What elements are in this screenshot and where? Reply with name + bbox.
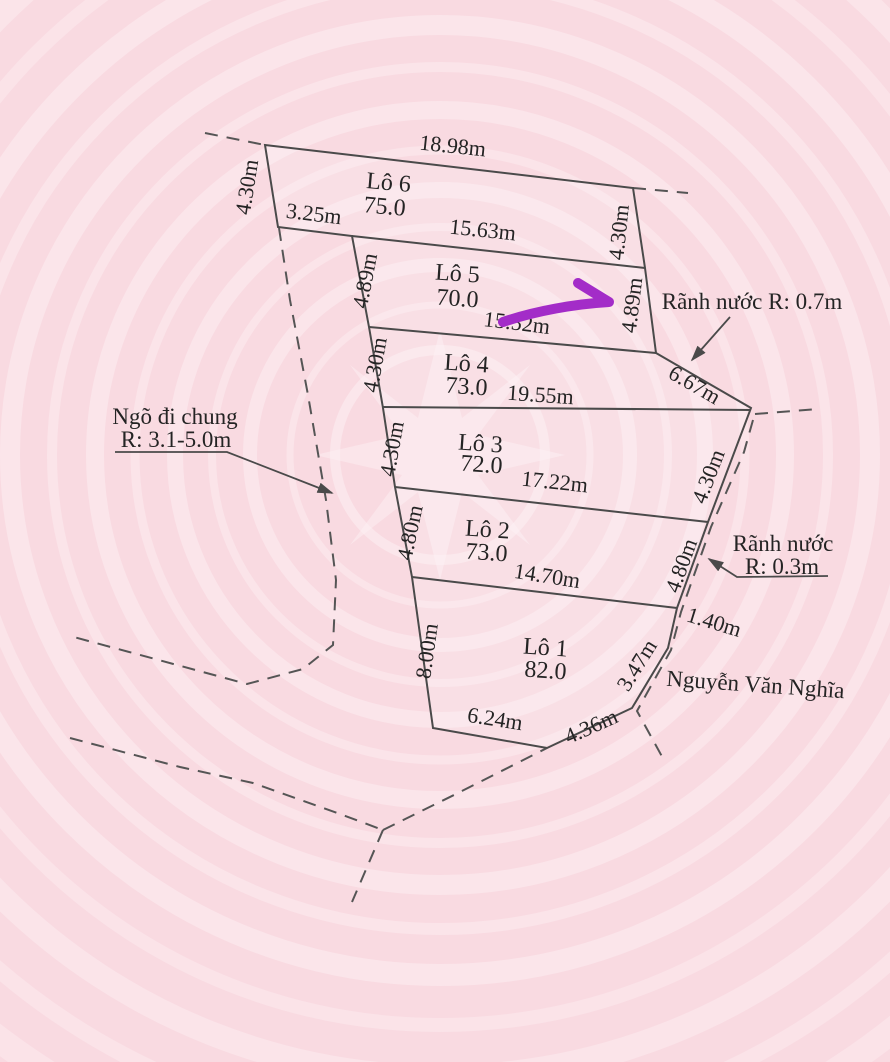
drain-right-label-line1: Rãnh nước xyxy=(733,531,834,556)
lot3-area: 72.0 xyxy=(460,451,504,480)
lot1-area: 82.0 xyxy=(524,657,568,686)
drain-right-label-line2: R: 0.3m xyxy=(745,554,819,579)
land-plot-diagram: 18.98m 4.30m 3.25m 15.63m 4.30m 4.89m 4.… xyxy=(0,0,890,1062)
cadastral-plan-page: 18.98m 4.30m 3.25m 15.63m 4.30m 4.89m 4.… xyxy=(0,0,890,1062)
lot2-area: 73.0 xyxy=(465,539,509,568)
lot6-area: 75.0 xyxy=(363,192,407,222)
alley-label-line1: Ngõ đi chung xyxy=(112,404,238,429)
dim-lot4-bottom: 19.55m xyxy=(506,380,574,410)
drain-top-label: Rãnh nước R: 0.7m xyxy=(662,289,843,314)
lot5-area: 70.0 xyxy=(436,285,480,314)
alley-label-line2: R: 3.1-5.0m xyxy=(121,427,232,452)
lot4-area: 73.0 xyxy=(445,373,489,402)
